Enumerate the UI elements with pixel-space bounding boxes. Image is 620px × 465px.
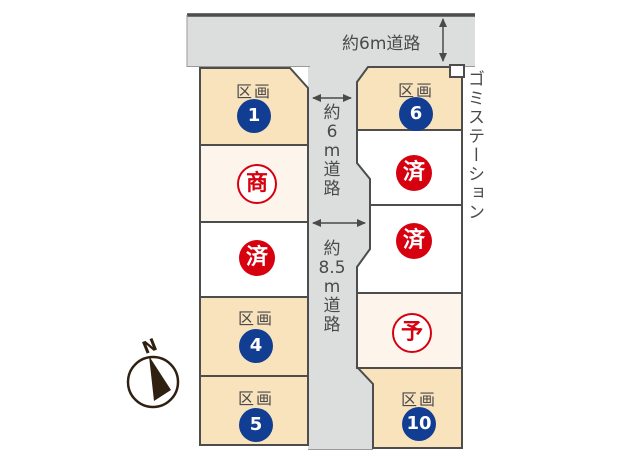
road-85m-char: 約 xyxy=(312,240,352,259)
plot-4-label: 区画 xyxy=(224,305,288,329)
plot-5-number-badge: 5 xyxy=(239,408,273,442)
road-6m-char: 路 xyxy=(312,180,352,199)
plot-1-number-badge: 1 xyxy=(237,99,271,133)
top-road xyxy=(187,13,475,67)
plot-5-label: 区画 xyxy=(224,385,288,409)
plot-4-number-badge: 4 xyxy=(239,329,273,363)
plot-6-number-badge: 6 xyxy=(399,97,433,131)
plot-sho-status-badge: 商 xyxy=(237,164,277,204)
plot-sumi-right-1-status-badge: 済 xyxy=(396,155,432,191)
lot-map-canvas: N xyxy=(0,0,620,465)
road-6m-char: 6 xyxy=(312,123,352,142)
vertical-road-85m-label: 約 8.5 m 道 路 xyxy=(312,240,352,335)
road-6m-char: 道 xyxy=(312,161,352,180)
plot-10-number-badge: 10 xyxy=(402,407,436,441)
plot-sumi-right-2-status-badge: 済 xyxy=(396,223,432,259)
plot-sumi-left-status-badge: 済 xyxy=(239,240,275,276)
road-6m-char: 約 xyxy=(312,104,352,123)
compass: N xyxy=(128,335,178,407)
plot-yo-status-badge: 予 xyxy=(392,313,432,353)
top-road-label: 約6m道路 xyxy=(342,29,420,54)
vertical-road-6m-label: 約 6 m 道 路 xyxy=(312,104,352,199)
road-85m-char: 8.5 xyxy=(312,259,352,278)
garbage-station-label: ゴミステーション xyxy=(462,70,487,250)
road-6m-char: m xyxy=(312,142,352,161)
road-85m-char: 道 xyxy=(312,297,352,316)
compass-north-label: N xyxy=(140,335,161,359)
road-85m-char: 路 xyxy=(312,316,352,335)
lot-map: N 約6m道路 約 6 m 道 路 約 8.5 m 道 路 ゴミステーション 区… xyxy=(0,0,620,465)
road-85m-char: m xyxy=(312,278,352,297)
